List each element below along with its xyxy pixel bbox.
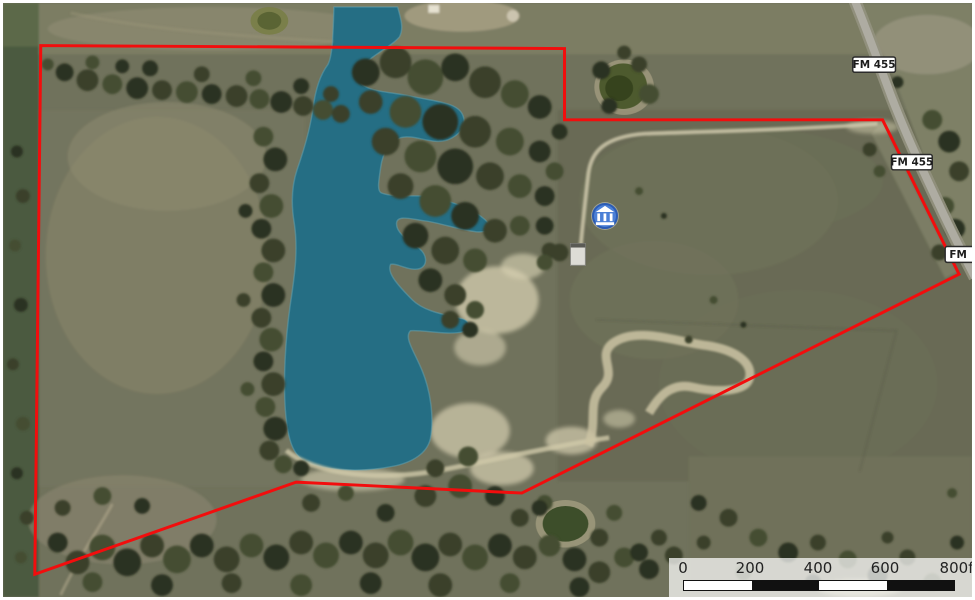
map-scene: FM 455 FM 455 FM bbox=[3, 3, 972, 597]
scale-tick: 600 bbox=[871, 559, 900, 577]
scale-segment bbox=[684, 581, 752, 590]
road-sign-label: FM bbox=[949, 249, 967, 261]
property-marker[interactable] bbox=[592, 203, 618, 229]
barn-building bbox=[570, 244, 585, 266]
satellite-map[interactable]: FM 455 FM 455 FM bbox=[3, 3, 972, 597]
scale-tick: 0 bbox=[678, 559, 688, 577]
road-sign-label: FM 455 bbox=[853, 59, 896, 71]
scale-segment bbox=[887, 581, 955, 590]
scale-tick: 200 bbox=[736, 559, 765, 577]
road-sign-label: FM 455 bbox=[890, 156, 933, 168]
scale-segment bbox=[819, 581, 887, 590]
home-marker-icon bbox=[594, 205, 616, 227]
road-sign-fm-clipped: FM bbox=[945, 247, 972, 263]
map-scalebar: 0200400600800ft bbox=[669, 558, 972, 597]
road-sign-fm455-mid: FM 455 bbox=[890, 154, 933, 169]
scale-tick: 400 bbox=[804, 559, 833, 577]
road-sign-fm455-north: FM 455 bbox=[853, 57, 896, 72]
scale-tick: 800ft bbox=[940, 559, 972, 577]
scale-segment bbox=[752, 581, 820, 590]
map-frame: FM 455 FM 455 FM bbox=[0, 0, 975, 600]
scalebar-bar bbox=[683, 580, 955, 591]
